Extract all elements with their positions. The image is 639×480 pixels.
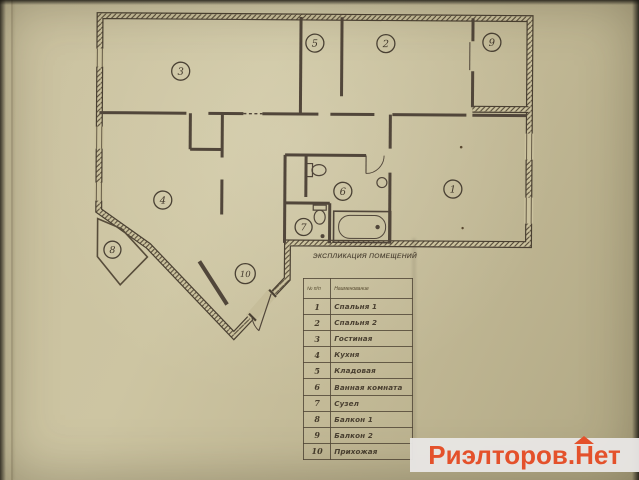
legend-row: 5 Кладовая [304, 363, 413, 379]
toilet-wc [313, 205, 326, 224]
watermark: Риэлторов.Нет [410, 438, 639, 472]
room-marker-9: 9 [483, 33, 501, 51]
room-marker-1: 1 [444, 180, 462, 198]
room-number: 8 [304, 411, 331, 427]
room-marker-8: 8 [104, 241, 121, 258]
svg-text:1: 1 [450, 185, 456, 196]
legend-row: 1 Спальня 1 [304, 299, 413, 315]
room-number: 2 [304, 315, 331, 331]
svg-text:6: 6 [340, 187, 347, 198]
legend-row: 2 Спальня 2 [304, 315, 413, 331]
toilet-bathroom [306, 164, 326, 177]
house-roof-icon [574, 436, 594, 444]
watermark-house-letter: Н [575, 442, 594, 468]
bathtub [333, 211, 390, 242]
room-number: 7 [304, 395, 331, 411]
svg-text:8: 8 [109, 245, 115, 256]
bathroom-door [366, 155, 384, 173]
entrance-door [249, 290, 276, 331]
room-number: 9 [304, 427, 331, 443]
room-name: Спальня 2 [331, 315, 413, 331]
room-name: Балкон 2 [331, 427, 413, 443]
sink [377, 178, 387, 188]
floor-plan-photo: 1 2 3 4 5 6 7 [0, 0, 639, 480]
svg-text:9: 9 [489, 38, 496, 49]
floor-drain [321, 234, 325, 238]
room-number: 1 [304, 299, 331, 315]
room-name: Кладовая [331, 363, 413, 379]
legend: ЭКСПЛИКАЦИЯ ПОМЕЩЕНИЙ № п/п Наименование… [303, 253, 415, 460]
legend-row: 8 Балкон 1 [304, 411, 413, 427]
legend-col-num: № п/п [304, 279, 331, 299]
room-number: 6 [304, 379, 331, 395]
legend-row: 4 Кухня [304, 347, 413, 363]
svg-text:3: 3 [177, 67, 183, 78]
legend-row: 10 Прихожая [304, 443, 413, 459]
room-marker-2: 2 [377, 35, 395, 53]
legend-row: 9 Балкон 2 [304, 427, 413, 443]
legend-table: № п/п Наименование 1 Спальня 1 2 Спальня… [303, 278, 413, 460]
room-name: Ванная комната [331, 379, 413, 395]
svg-text:2: 2 [382, 39, 389, 50]
svg-text:4: 4 [159, 196, 166, 207]
room-name: Сузел [331, 395, 413, 411]
legend-row: 6 Ванная комната [304, 379, 413, 395]
legend-row: 7 Сузел [304, 395, 413, 411]
room-number: 4 [304, 347, 331, 363]
room-marker-4: 4 [154, 191, 172, 209]
room-name: Гостиная [331, 331, 413, 347]
legend-row: 3 Гостиная [304, 331, 413, 347]
watermark-text-left: Риэлторов. [428, 442, 575, 468]
watermark-text-right: ет [594, 442, 621, 468]
room-number: 3 [304, 331, 331, 347]
legend-title: ЭКСПЛИКАЦИЯ ПОМЕЩЕНИЙ [313, 253, 415, 260]
room-marker-6: 6 [334, 182, 352, 200]
room-marker-5: 5 [306, 34, 324, 52]
room-marker-3: 3 [172, 62, 190, 80]
room-name: Кухня [331, 347, 413, 363]
svg-text:10: 10 [240, 270, 251, 280]
room-name: Спальня 1 [331, 299, 413, 315]
room-number: 10 [304, 443, 331, 459]
room-name: Прихожая [331, 443, 413, 459]
watermark-letter: Н [575, 440, 594, 470]
room-name: Балкон 1 [331, 411, 413, 427]
svg-text:5: 5 [312, 39, 318, 50]
legend-header-row: № п/п Наименование [304, 279, 413, 299]
room-marker-7: 7 [295, 218, 312, 235]
legend-col-name: Наименование [331, 279, 413, 299]
svg-text:7: 7 [301, 222, 308, 233]
room-marker-10: 10 [235, 264, 255, 284]
room-number: 5 [304, 363, 331, 379]
